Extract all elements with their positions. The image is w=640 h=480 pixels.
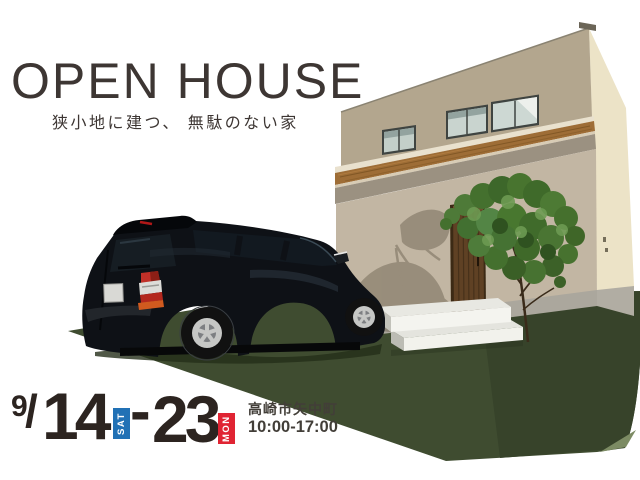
- open-house-flyer: OPEN HOUSE 狭小地に建つ、 無駄のない家 9 / 14 SAT - 2…: [0, 0, 640, 480]
- date-end-day: 23: [152, 386, 217, 452]
- date-start-day: 14: [42, 383, 107, 449]
- event-hours: 10:00-17:00: [248, 419, 338, 436]
- house: [335, 22, 634, 340]
- event-info: 高崎市矢中町 10:00-17:00: [248, 402, 338, 436]
- wall-fixture: [603, 237, 606, 242]
- flyer-title: OPEN HOUSE: [11, 56, 364, 106]
- front-wheel: [345, 298, 383, 336]
- entrance-steps: [378, 298, 523, 356]
- event-location: 高崎市矢中町: [248, 402, 338, 416]
- date-slash: /: [25, 388, 38, 434]
- weekday-badge-sat: SAT: [113, 408, 130, 439]
- rear-wheel: [180, 306, 234, 360]
- flyer-subtitle: 狭小地に建つ、 無駄のない家: [52, 116, 299, 132]
- weekday-badge-mon: MON: [218, 413, 235, 444]
- wall-fixture: [605, 248, 608, 252]
- date-range-dash: -: [130, 381, 151, 443]
- license-plate: [104, 284, 124, 303]
